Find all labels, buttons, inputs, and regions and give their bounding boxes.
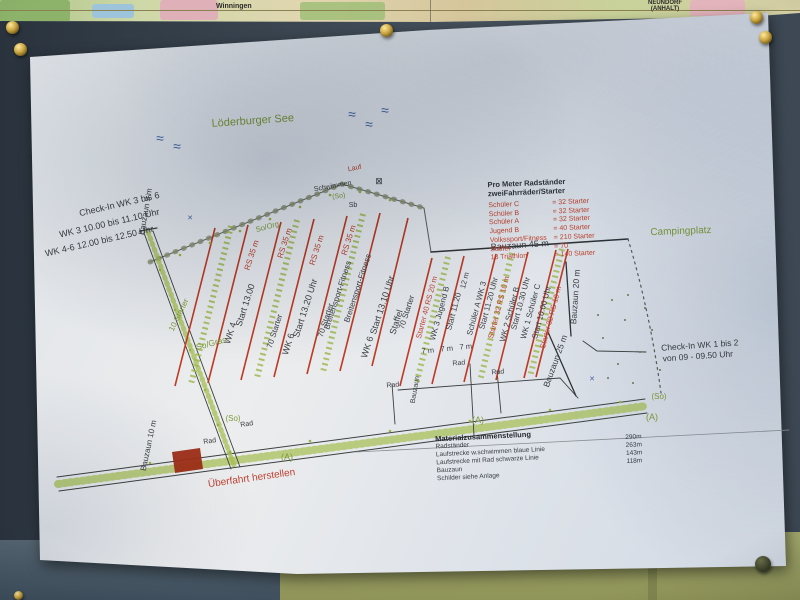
lane-hatch <box>148 232 235 468</box>
plan-label: Schwimmen <box>313 180 352 194</box>
push-pin-icon <box>14 43 27 56</box>
plan-label: Bauzaun <box>410 375 422 404</box>
plan-label: ≈ <box>156 130 164 146</box>
plan-label: RS 35 m <box>308 234 326 267</box>
push-pin-icon <box>755 556 771 572</box>
plan-label: WK 6 <box>359 335 375 359</box>
plan-label: Löderburger See <box>211 112 294 130</box>
push-pin-icon <box>14 591 23 600</box>
plan-label: Bauzaun 45 m <box>490 238 549 252</box>
plan-label: (A) <box>646 412 658 422</box>
plan-label: 7 m <box>421 345 434 355</box>
plan-label: ✕ <box>187 215 193 222</box>
terrain-dots <box>597 294 661 384</box>
leader-line <box>583 341 646 352</box>
plan-label: Rad <box>240 420 254 429</box>
push-pin-icon <box>6 21 19 34</box>
path-connector <box>392 384 395 424</box>
push-pin-icon <box>380 24 393 37</box>
path-connector <box>470 364 474 436</box>
site-plan-drawing: ≈≈≈≈≈Löderburger SeeCampingplatzCheck-In… <box>0 0 800 600</box>
plan-label: (So) <box>332 192 346 201</box>
plan-label: ✕ <box>589 376 595 383</box>
push-pin-icon <box>750 11 763 24</box>
plan-label: 70 Starter <box>265 313 285 350</box>
plan-label: Start 13.00 <box>234 283 257 328</box>
crossing-marker <box>172 448 203 473</box>
plan-label: ≈ <box>365 116 373 132</box>
plan-label: RS 35 m <box>340 224 358 257</box>
path-connector <box>497 371 501 413</box>
plan-annotations: ≈≈≈≈≈Löderburger SeeCampingplatzCheck-In… <box>44 102 739 490</box>
plan-label: Rad <box>491 368 505 376</box>
plan-label: ≈ <box>173 138 181 154</box>
plan-label: (A) <box>281 452 293 462</box>
plan-label: RS 35 m <box>243 239 261 272</box>
plan-label: ≈ <box>381 102 389 118</box>
plan-label: (A) <box>472 415 484 425</box>
photo-of-pinned-site-plan: Winningen NEUNDORF (ANHALT) <box>0 0 800 600</box>
plan-label: (So) <box>651 392 666 401</box>
plan-label: Lauf <box>347 164 362 174</box>
plan-label: Campingplatz <box>650 225 712 238</box>
shore-line <box>150 184 431 262</box>
plan-label: Rad <box>452 359 466 367</box>
plan-label: Rad <box>386 381 400 389</box>
plan-label: Bauzaun 20 m <box>568 269 582 324</box>
boundary-dotted <box>628 239 661 393</box>
push-pin-icon <box>759 31 772 44</box>
plan-label: ≈ <box>348 106 356 122</box>
plan-label: So/Org <box>255 219 280 234</box>
plan-label: 7 m <box>440 343 453 353</box>
plan-label: Sb <box>349 202 358 209</box>
plan-label: ⊠ <box>375 176 383 186</box>
plan-label: Start 13.20 Uhr <box>291 278 319 339</box>
plan-label: 7 m <box>459 341 472 351</box>
plan-label: Rad <box>203 437 217 446</box>
plan-label: (So) <box>225 414 240 423</box>
